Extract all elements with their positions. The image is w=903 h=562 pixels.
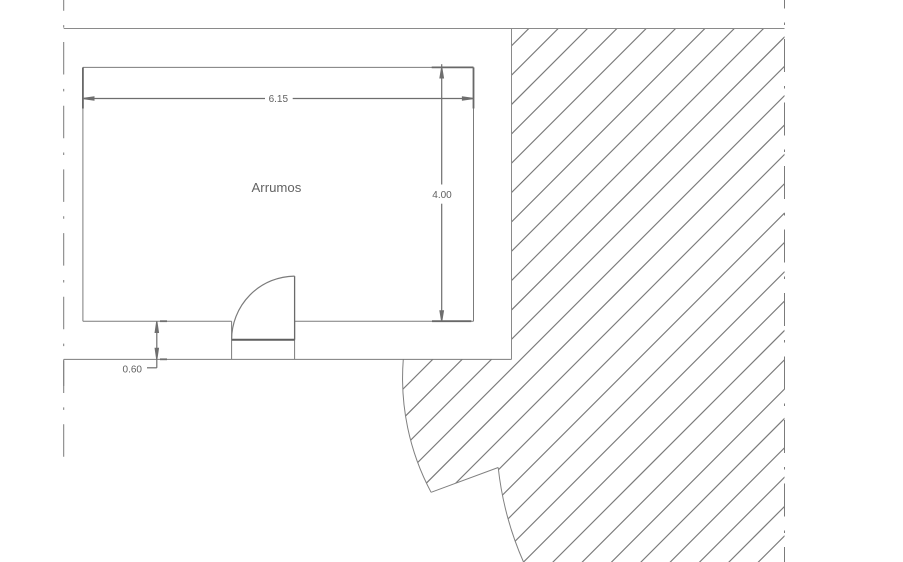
svg-text:Arrumos: Arrumos — [252, 180, 302, 195]
svg-text:0.60: 0.60 — [123, 364, 143, 375]
svg-text:6.15: 6.15 — [269, 94, 289, 105]
svg-text:4.00: 4.00 — [432, 190, 452, 201]
